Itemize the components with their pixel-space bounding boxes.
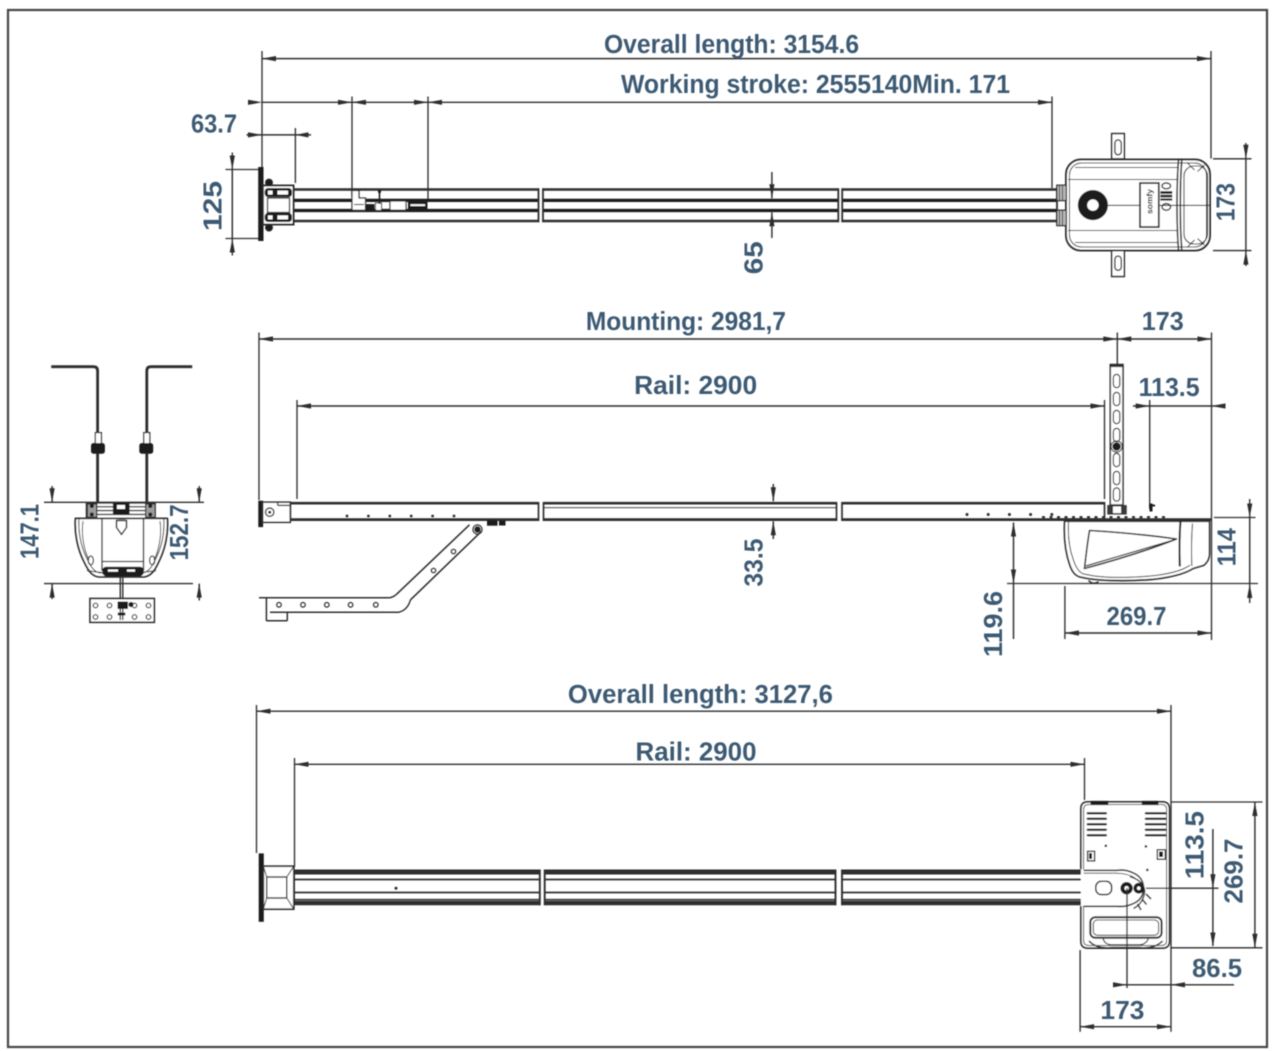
svg-text:269.7: 269.7 [1219,838,1249,903]
svg-text:113.5: 113.5 [1139,374,1200,403]
svg-text:114: 114 [1214,528,1242,566]
svg-text:Overall length: 3127,6: Overall length: 3127,6 [568,681,833,709]
svg-text:Overall length: 3154.6: Overall length: 3154.6 [604,30,859,59]
svg-text:63.7: 63.7 [191,111,237,139]
svg-text:173: 173 [1142,308,1184,336]
svg-text:Working stroke: 2555140Min. 17: Working stroke: 2555140Min. 171 [621,70,1010,99]
svg-text:Rail: 2900: Rail: 2900 [635,736,756,766]
svg-text:173: 173 [1212,183,1241,221]
svg-text:147.1: 147.1 [16,504,45,559]
svg-text:33.5: 33.5 [740,539,769,587]
svg-text:Rail: 2900: Rail: 2900 [634,370,757,400]
svg-text:113.5: 113.5 [1180,811,1209,879]
svg-text:86.5: 86.5 [1192,955,1242,983]
svg-text:Mounting: 2981,7: Mounting: 2981,7 [586,307,786,336]
svg-text:173: 173 [1100,995,1144,1025]
svg-text:152.7: 152.7 [165,504,194,560]
svg-text:65: 65 [739,241,768,274]
svg-text:somfy: somfy [1145,189,1155,214]
svg-text:125: 125 [198,181,227,231]
svg-text:119.6: 119.6 [979,591,1008,657]
svg-text:269.7: 269.7 [1107,602,1167,631]
